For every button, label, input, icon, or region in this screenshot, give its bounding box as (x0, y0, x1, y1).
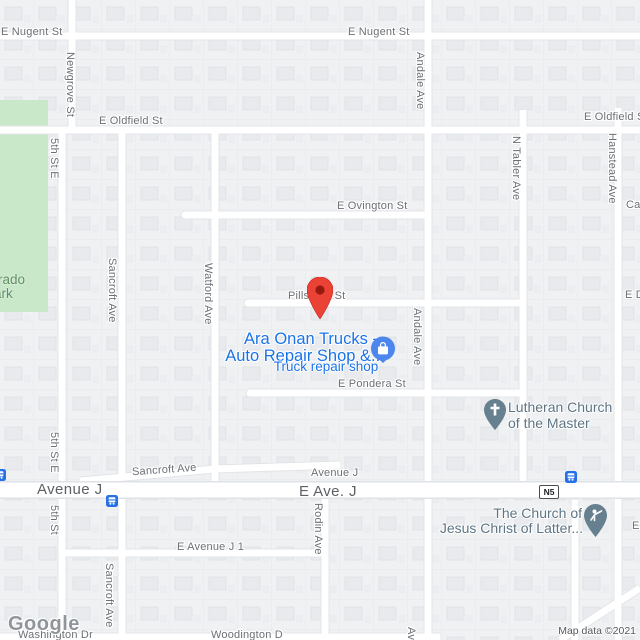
destination-pin-icon[interactable] (307, 277, 333, 324)
street-label-e-oldfield-st-left: E Oldfield St (99, 115, 163, 127)
park-label-line1: rado (0, 272, 25, 287)
street-label-ca-fragment: Ca (626, 199, 640, 211)
street-label-e-oldfield-st-right: E Oldfield St (584, 111, 640, 123)
street-label-e-nugent-st-mid: E Nugent St (348, 26, 410, 38)
lds-church-pin-icon[interactable] (584, 504, 607, 542)
street-label-sancroft-ave-top: Sancroft Ave (106, 258, 118, 323)
street-label-e-pondera-st: E Pondera St (338, 378, 406, 390)
street-label-e-avenue-j-1: E Avenue J 1 (177, 541, 244, 553)
poi-lutheran-church-line2[interactable]: of the Master (508, 415, 590, 431)
bus-station-icon[interactable] (0, 468, 6, 480)
street-label-e-fragment: E (632, 520, 640, 532)
map-attribution: Map data ©2021 (558, 625, 636, 637)
street-label-5th-st-e-top: 5th St E (48, 138, 60, 179)
street-label-watford-ave: Watford Ave (202, 263, 214, 325)
street-label-woodington-dr: Woodington D (211, 629, 283, 640)
park-label-line2: ark (0, 286, 13, 301)
street-label-e-ovington-st: E Ovington St (337, 200, 407, 212)
street-label-avenue-j-major: Avenue J (37, 481, 102, 498)
street-label-e-ave-j: E Ave. J (299, 483, 357, 500)
google-logo[interactable]: Google (8, 613, 80, 636)
church-pin-icon[interactable] (484, 399, 506, 435)
poi-business-category: Truck repair shop (274, 359, 379, 374)
street-label-5th-st-bottom: 5th St (48, 505, 60, 535)
street-label-rodin-ave: Rodin Ave (312, 503, 324, 555)
poi-lds-church-line2[interactable]: Jesus Christ of Latter... (440, 520, 583, 536)
street-label-n-tabler-ave: N Tabler Ave (510, 136, 522, 200)
bus-station-icon[interactable] (106, 494, 118, 506)
street-label-hanstead-ave: Hanstead Ave (606, 133, 618, 204)
street-label-sancroft-ave-bottom: Sancroft Ave (103, 563, 115, 628)
street-label-5th-st-e-mid: 5th St E (48, 432, 60, 473)
poi-lutheran-church-line1[interactable]: Lutheran Church (508, 399, 612, 415)
street-label-andale-ave-mid: Andale Ave (411, 308, 423, 365)
shopping-poi-icon[interactable] (370, 336, 396, 368)
bus-station-icon[interactable] (565, 470, 577, 482)
street-label-e-nugent-st-left: E Nugent St (1, 26, 63, 38)
poi-lds-church-line1[interactable]: The Church of (493, 505, 582, 521)
street-label-avenue-j-minor: Avenue J (311, 467, 358, 479)
street-label-e-d-fragment: E D (625, 289, 640, 301)
route-n5-badge: N5 (539, 485, 559, 499)
street-label-newgrove-st: Newgrove St (64, 52, 76, 117)
street-label-andale-ave-bottom: Ave (405, 627, 417, 640)
map-canvas[interactable]: rado ark E Nugent St E Nugent St E Oldfi… (0, 0, 640, 640)
street-label-andale-ave-top: Andale Ave (414, 52, 426, 109)
